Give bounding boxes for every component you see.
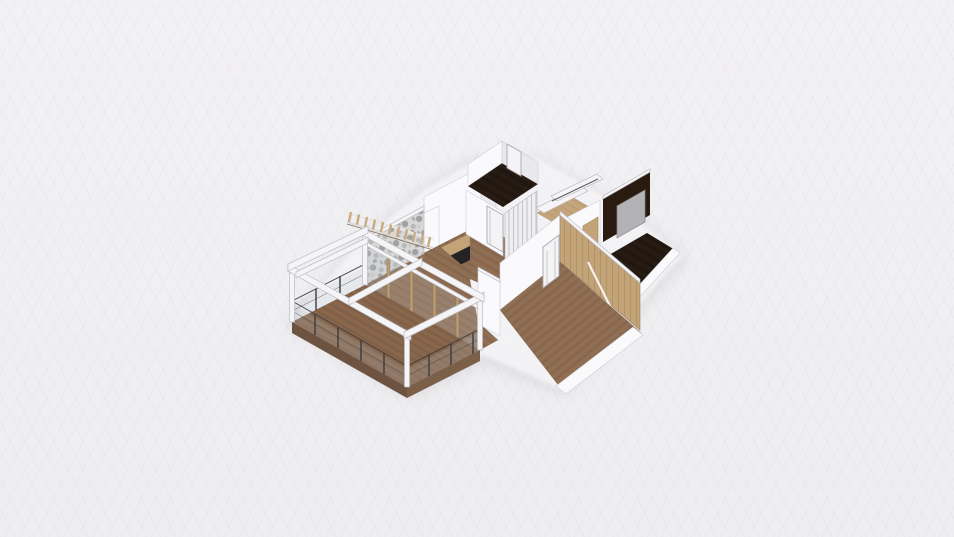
pergola-post — [478, 301, 483, 350]
render-canvas — [0, 0, 954, 537]
mullion — [456, 297, 459, 339]
pergola-post — [405, 338, 410, 387]
pergola-post — [290, 273, 295, 322]
mullion — [410, 271, 413, 313]
floorplan-3d-viewport[interactable] — [0, 0, 954, 537]
